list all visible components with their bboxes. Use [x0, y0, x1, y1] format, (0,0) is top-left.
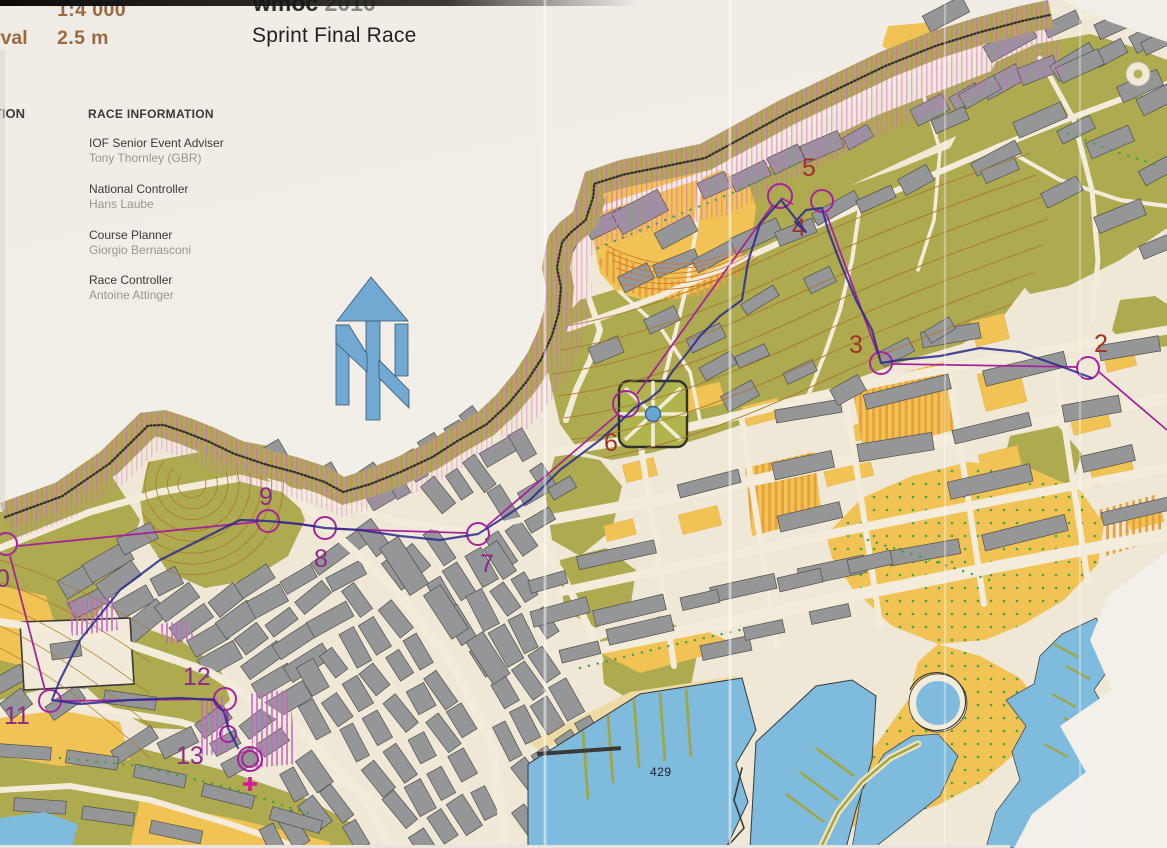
svg-text:2.5 m: 2.5 m — [57, 27, 109, 49]
svg-text:Giorgio Bernasconi: Giorgio Bernasconi — [89, 243, 191, 257]
svg-text:IOF Senior Event Adviser: IOF Senior Event Adviser — [89, 136, 224, 150]
svg-text:RACE INFORMATION: RACE INFORMATION — [88, 107, 214, 121]
svg-text:3: 3 — [849, 331, 863, 359]
svg-text:12: 12 — [183, 663, 211, 691]
svg-text:Hans Laube: Hans Laube — [89, 197, 154, 211]
svg-text:Sprint Final Race: Sprint Final Race — [252, 24, 416, 47]
svg-text:0: 0 — [0, 565, 10, 593]
svg-text:Race Controller: Race Controller — [89, 273, 172, 287]
svg-text:Antoine Attinger: Antoine Attinger — [89, 288, 174, 302]
svg-text:7: 7 — [480, 550, 494, 578]
svg-text:National Controller: National Controller — [89, 182, 188, 196]
svg-text:Course Planner: Course Planner — [89, 228, 172, 242]
svg-text:rval: rval — [0, 27, 28, 49]
svg-text:8: 8 — [314, 545, 328, 573]
svg-text:Tony Thornley (GBR): Tony Thornley (GBR) — [89, 151, 201, 165]
svg-text:2: 2 — [1094, 330, 1108, 358]
svg-text:5: 5 — [802, 154, 816, 182]
svg-text:13: 13 — [176, 742, 204, 770]
svg-text:429: 429 — [650, 765, 672, 779]
svg-text:11: 11 — [4, 702, 30, 730]
svg-text:9: 9 — [259, 483, 273, 511]
